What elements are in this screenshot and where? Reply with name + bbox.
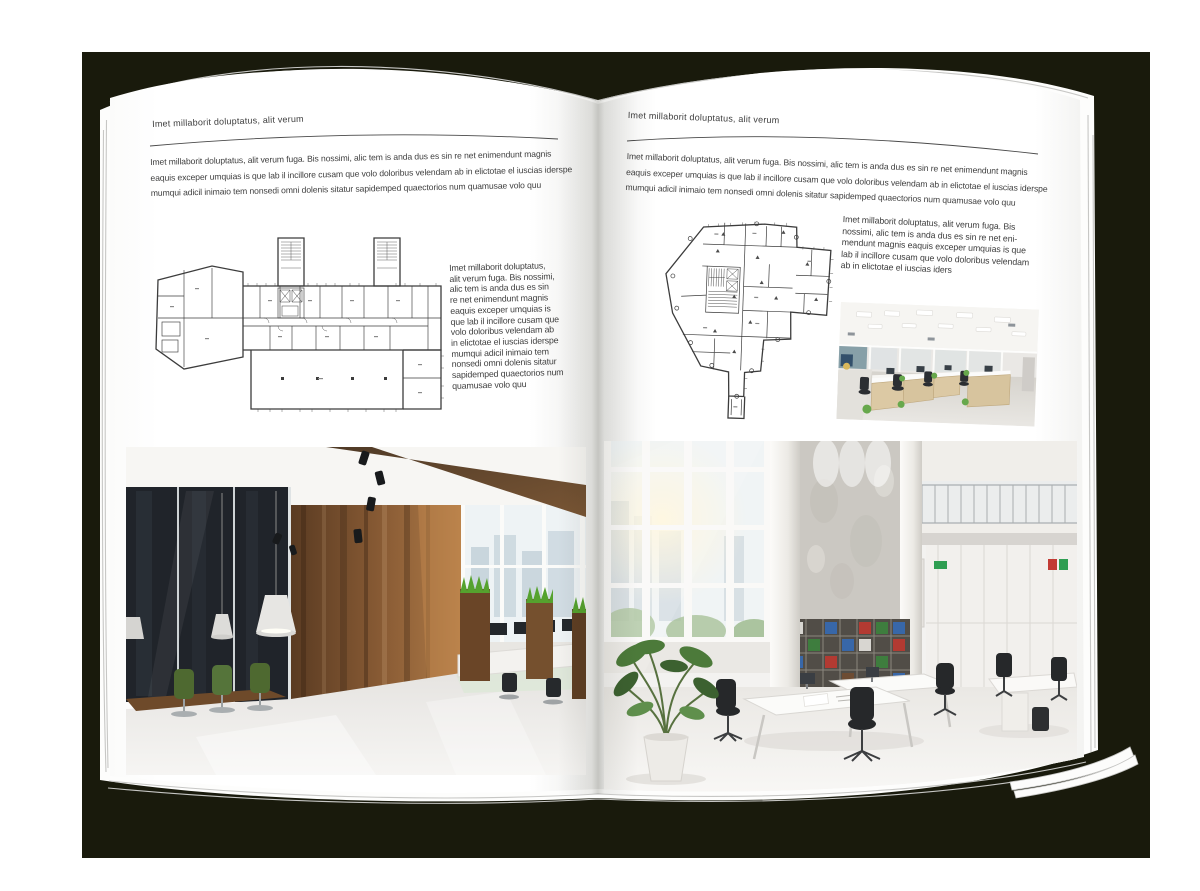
photo-office-white-small [836,302,1040,427]
rp-mezzanine [904,441,1077,545]
right-caption-text: Imet millaborit doluptatus, alit verum f… [840,214,1054,282]
left-caption-text: Imet millaborit doluptatus, alit verum f… [449,260,574,392]
spread-content: Imet millaborit doluptatus, alit verum I… [0,0,1200,891]
left-floor-plan [150,228,445,413]
plan-door-arcs [264,318,397,331]
plan2-outer-walls [661,221,832,422]
right-floor-plan [640,215,839,429]
plan-partitions [158,268,441,378]
magazine-mockup-stage: Imet millaborit doluptatus, alit verum I… [0,0,1200,891]
plan2-stair-hatch [708,268,738,307]
plan2-columns [667,219,833,401]
rp-window-wall [604,441,776,673]
rp-concrete-wall [800,441,900,619]
plan-stair-hatch [281,242,397,268]
plan-columns [281,377,387,380]
rp-column-left [770,441,800,713]
plan2-window-ticks [703,220,835,391]
left-header-rule [150,135,558,146]
left-intro-paragraph: Imet millaborit doluptatus, alit verum f… [150,146,573,201]
plan-outer-walls [156,238,441,409]
photo-office-darkwood [126,447,586,775]
sp-lounge-corner [838,346,867,371]
plan2-partitions [677,221,832,418]
sp-door [1022,357,1035,391]
plan-window-ticks [248,283,444,412]
plan-elevators [280,290,302,316]
photo-office-bright-loft [604,441,1077,793]
